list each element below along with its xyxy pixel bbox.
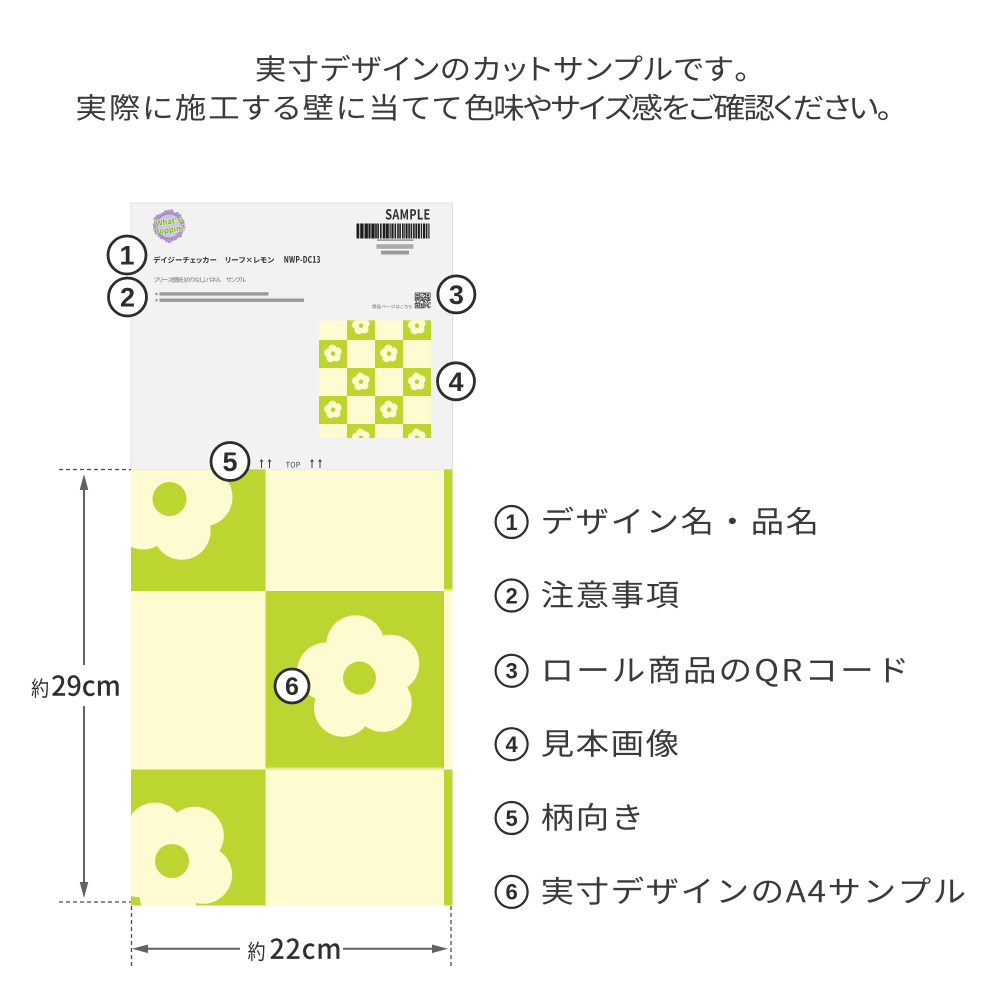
svg-text:2: 2 — [505, 583, 517, 608]
svg-text:1: 1 — [505, 510, 517, 535]
svg-text:6: 6 — [285, 673, 299, 701]
svg-text:6: 6 — [505, 880, 517, 905]
svg-text:4: 4 — [448, 367, 463, 397]
svg-text:3: 3 — [505, 659, 517, 684]
svg-text:4: 4 — [505, 732, 518, 757]
svg-text:3: 3 — [449, 280, 464, 310]
svg-text:1: 1 — [119, 241, 134, 271]
svg-text:2: 2 — [120, 283, 135, 313]
svg-text:5: 5 — [222, 447, 237, 477]
svg-text:5: 5 — [505, 806, 517, 831]
